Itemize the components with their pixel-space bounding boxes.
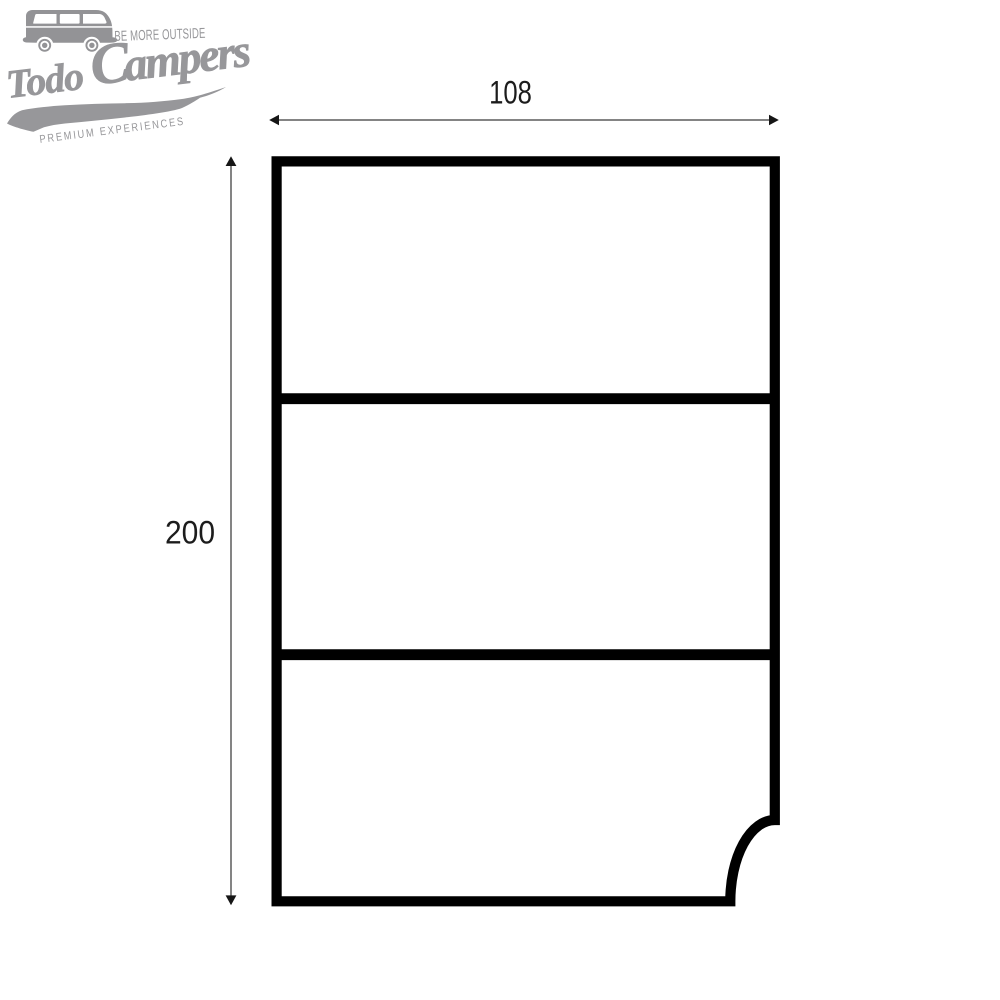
svg-text:200: 200 bbox=[165, 515, 215, 551]
svg-text:108: 108 bbox=[489, 76, 532, 111]
svg-text:Todo: Todo bbox=[4, 53, 86, 107]
